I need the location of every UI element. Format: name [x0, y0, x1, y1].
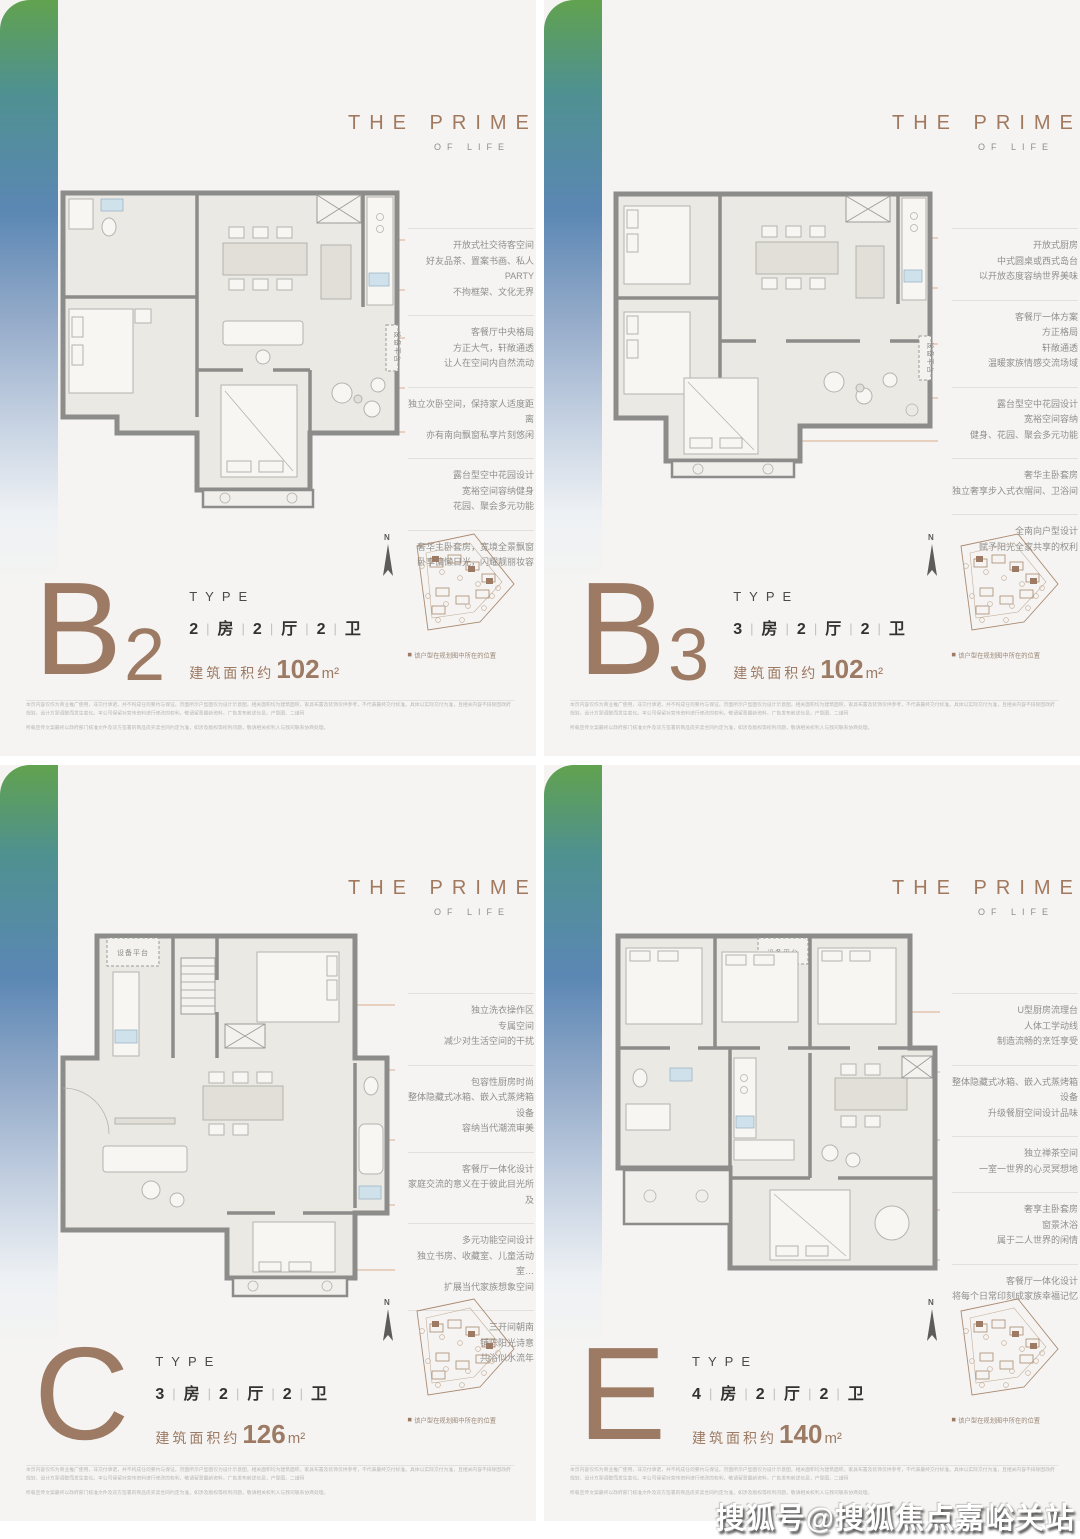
- annotation-block: 露台型空中花园设计 宽裕空间容纳 健身、花园、聚会多元功能: [952, 387, 1078, 444]
- brand-line2: OF LIFE: [348, 907, 520, 917]
- annotation-line: 客餐厅一体化设计: [408, 1162, 534, 1178]
- site-plan: N 该户型在规划图中: [916, 526, 1076, 674]
- layout-row: 2|房|2|厅|2|卫: [189, 615, 361, 639]
- separator: |: [786, 621, 789, 636]
- separator: |: [750, 621, 753, 636]
- annotation-line: 客餐厅一体方案: [952, 310, 1078, 326]
- annotation-line: 人体工学动线: [952, 1019, 1078, 1035]
- compass-icon: N: [927, 533, 937, 576]
- equipment-platform-label: 设备平台: [393, 331, 402, 363]
- annotation-line: 升级餐厨空间设计品味: [952, 1106, 1078, 1122]
- annotation-line: 方正格局: [952, 325, 1078, 341]
- layout-row: 3|房|2|厅|2|卫: [733, 615, 905, 639]
- unit-letter-main: B: [578, 575, 666, 683]
- site-boundary: [961, 1299, 1058, 1395]
- rooms-count: 3: [733, 621, 742, 638]
- annotation-line: 整体隐藏式冰箱、嵌入式蒸烤箱设备: [952, 1075, 1078, 1106]
- unit-letter-main: B: [34, 575, 122, 683]
- annotation-block: 独立禅茶空间 一室一世界的心灵冥想地: [952, 1136, 1078, 1177]
- baths-unit: 卫: [848, 1386, 864, 1403]
- caption-bullet: [952, 653, 956, 657]
- annotation-line: 客餐厅中央格局: [408, 325, 534, 341]
- annotation-line: 露台型空中花园设计: [408, 468, 534, 484]
- area-prefix: 建筑面积约: [189, 665, 274, 681]
- site-plan: N 该户型在规划图中: [372, 526, 532, 674]
- annotation-line: 一室一世界的心灵冥想地: [952, 1162, 1078, 1178]
- area-prefix: 建筑面积约: [733, 665, 818, 681]
- area-value: 140: [779, 1419, 822, 1449]
- annotation-line: 窗景沐浴: [952, 1218, 1078, 1234]
- unit-letter: B 2: [34, 575, 165, 683]
- type-details: TYPE 3|房|2|厅|2|卫 建筑面积约126m²: [155, 1340, 327, 1450]
- rooms-unit: 房: [762, 621, 778, 638]
- annotation-line: 宽裕空间容纳: [952, 412, 1078, 428]
- annotation-line: 属于二人世界的闲情: [952, 1233, 1078, 1249]
- brand-line2: OF LIFE: [348, 142, 520, 152]
- brand-logo: THE PRIME OF LIFE: [348, 877, 520, 917]
- floorplan-drawing-e: 设备平台: [610, 928, 940, 1303]
- layout-row: 3|房|2|厅|2|卫: [155, 1380, 327, 1404]
- area-unit: m²: [866, 665, 884, 682]
- compass-icon: N: [383, 533, 393, 576]
- annotation-line: 减少对生活空间的干扰: [408, 1034, 534, 1050]
- separator: |: [236, 1386, 239, 1401]
- baths-count: 2: [283, 1386, 292, 1403]
- floorplan-drawing-b2: 设备平台: [55, 185, 405, 515]
- annotation-line: 家庭交流的意义在于彼此目光所及: [408, 1177, 534, 1208]
- halls-count: 2: [756, 1386, 765, 1403]
- annotation-block: 露台型空中花园设计 宽裕空间容纳健身 花园、聚会多元功能: [408, 458, 534, 515]
- svg-text:N: N: [384, 1298, 390, 1307]
- annotation-line: U型厨房流理台: [952, 1003, 1078, 1019]
- area-unit: m²: [322, 665, 340, 682]
- type-details: TYPE 2|房|2|厅|2|卫 建筑面积约102m²: [189, 575, 361, 685]
- annotation-line: 整体隐藏式冰箱、嵌入式蒸烤箱设备: [408, 1090, 534, 1121]
- svg-text:N: N: [928, 1298, 934, 1307]
- annotation-line: 露台型空中花园设计: [952, 397, 1078, 413]
- annotation-line: 多元功能空间设计: [408, 1233, 534, 1249]
- site-plan-drawing: N: [372, 526, 532, 644]
- annotation-block: 客餐厅一体化设计 家庭交流的意义在于彼此目光所及: [408, 1152, 534, 1209]
- brand-line1: THE PRIME: [892, 112, 1064, 135]
- unit-letter: E: [578, 1340, 668, 1448]
- area-row: 建筑面积约140m²: [692, 1419, 864, 1450]
- unit-letter: C: [34, 1340, 131, 1448]
- annotation-line: 独立奢享步入式衣帽间、卫浴间: [952, 484, 1078, 500]
- baths-unit: 卫: [889, 621, 905, 638]
- site-plan-drawing: N: [916, 526, 1076, 644]
- site-plan-caption: 该户型在规划图中所在的位置: [924, 651, 1068, 660]
- halls-unit: 厅: [281, 621, 297, 638]
- annotation-line: 花园、聚会多元功能: [408, 499, 534, 515]
- type-block: E TYPE 4|房|2|厅|2|卫 建筑面积约140m²: [578, 1340, 864, 1450]
- separator: |: [334, 621, 337, 636]
- baths-count: 2: [317, 621, 326, 638]
- brand-line1: THE PRIME: [348, 112, 520, 135]
- area-value: 126: [242, 1419, 285, 1449]
- separator: |: [814, 621, 817, 636]
- baths-unit: 卫: [311, 1386, 327, 1403]
- site-plan: N 该户型在规划图中: [372, 1291, 532, 1439]
- site-plan: N 该户型在规划图中: [916, 1291, 1076, 1439]
- annotation-block: 奢享主卧套房 窗景沐浴 属于二人世界的闲情: [952, 1192, 1078, 1249]
- annotation-line: 不拘框架、文化无界: [408, 285, 534, 301]
- type-label: TYPE: [155, 1354, 327, 1369]
- area-row: 建筑面积约102m²: [733, 654, 905, 685]
- brand-logo: THE PRIME OF LIFE: [892, 877, 1064, 917]
- separator: |: [836, 1386, 839, 1401]
- site-plan-drawing: N: [916, 1291, 1076, 1409]
- separator: |: [744, 1386, 747, 1401]
- area-row: 建筑面积约102m²: [189, 654, 361, 685]
- annotation-block: 开放式厨房 中式圆桌或西式岛台 以开放态度容纳世界美味: [952, 228, 1078, 285]
- caption-text: 该户型在规划图中所在的位置: [414, 653, 496, 659]
- separator: |: [208, 1386, 211, 1401]
- annotation-line: 健身、花园、聚会多元功能: [952, 428, 1078, 444]
- site-plan-drawing: N: [372, 1291, 532, 1409]
- brand-line1: THE PRIME: [892, 877, 1064, 900]
- disclaimer-line1: 本页内容仅作为商业推广使用，非交付承诺，并不构成任何要约与保证。页面所示户型图仅…: [570, 1466, 1058, 1484]
- equipment-platform-label: 设备平台: [117, 948, 149, 957]
- rooms-count: 2: [189, 621, 198, 638]
- type-details: TYPE 3|房|2|厅|2|卫 建筑面积约102m²: [733, 575, 905, 685]
- annotation-block: 独立洗衣操作区 专属空间 减少对生活空间的干扰: [408, 993, 534, 1050]
- annotation-line: 客餐厅一体化设计: [952, 1274, 1078, 1290]
- brand-line2: OF LIFE: [892, 142, 1064, 152]
- type-label: TYPE: [692, 1354, 864, 1369]
- floorplan-drawing-b3: 设备平台: [608, 186, 938, 486]
- rooms-count: 3: [155, 1386, 164, 1403]
- unit-letter: B 3: [578, 575, 709, 683]
- separator: |: [242, 621, 245, 636]
- compass-icon: N: [383, 1298, 393, 1341]
- annotation-line: 开放式社交待客空间: [408, 238, 534, 254]
- rooms-unit: 房: [184, 1386, 200, 1403]
- separator: |: [271, 1386, 274, 1401]
- annotation-line: 亦有南向飘窗私享片刻悠闲: [408, 428, 534, 444]
- site-plan-caption: 该户型在规划图中所在的位置: [380, 651, 524, 660]
- svg-text:N: N: [928, 533, 934, 542]
- annotation-line: 轩敞通透: [952, 341, 1078, 357]
- annotation-block: 独立次卧空间，保持家人适度距离 亦有南向飘窗私享片刻悠闲: [408, 387, 534, 444]
- caption-text: 该户型在规划图中所在的位置: [958, 1418, 1040, 1424]
- brand-logo: THE PRIME OF LIFE: [348, 112, 520, 152]
- sohu-watermark: 搜狐号@搜狐焦点嘉峪关站: [716, 1495, 1075, 1537]
- brand-line2: OF LIFE: [892, 907, 1064, 917]
- site-boundary: [417, 534, 514, 630]
- annotation-block: 客餐厅中央格局 方正大气，轩敞通透 让人在空间内自然流动: [408, 315, 534, 372]
- disclaimer-line2: 所载宣传文案最终以政府部门核准文件及双方签署的商品房买卖合同约定为准，如涉及版权…: [26, 724, 338, 733]
- halls-unit: 厅: [825, 621, 841, 638]
- equipment-platform-label: 设备平台: [926, 342, 935, 374]
- annotation-line: 专属空间: [408, 1019, 534, 1035]
- unit-panel-c: THE PRIME OF LIFE 设备平台: [0, 765, 536, 1521]
- separator: |: [878, 621, 881, 636]
- type-block: C TYPE 3|房|2|厅|2|卫 建筑面积约126m²: [34, 1340, 327, 1450]
- unit-panel-e: THE PRIME OF LIFE: [544, 765, 1080, 1521]
- baths-count: 2: [861, 621, 870, 638]
- type-block: B 3 TYPE 3|房|2|厅|2|卫 建筑面积约102m²: [578, 575, 905, 685]
- annotation-line: 中式圆桌或西式岛台: [952, 254, 1078, 270]
- annotation-line: 独立禅茶空间: [952, 1146, 1078, 1162]
- halls-unit: 厅: [247, 1386, 263, 1403]
- baths-unit: 卫: [345, 621, 361, 638]
- annotation-line: 温暖家族情感交流场域: [952, 356, 1078, 372]
- separator: |: [773, 1386, 776, 1401]
- disclaimer: 本页内容仅作为商业推广使用，非交付承诺，并不构成任何要约与保证。页面所示户型图仅…: [26, 1465, 514, 1500]
- area-value: 102: [820, 654, 863, 684]
- unit-panel-b3: THE PRIME OF LIFE: [544, 0, 1080, 756]
- annotation-line: 开放式厨房: [952, 238, 1078, 254]
- annotation-block: 开放式社交待客空间 好友品茶、置案书画、私人PARTY 不拘框架、文化无界: [408, 228, 534, 300]
- separator: |: [172, 1386, 175, 1401]
- annotation-line: 方正大气，轩敞通透: [408, 341, 534, 357]
- disclaimer-line1: 本页内容仅作为商业推广使用，非交付承诺，并不构成任何要约与保证。页面所示户型图仅…: [570, 701, 1058, 719]
- area-unit: m²: [824, 1430, 842, 1447]
- site-boundary: [961, 534, 1058, 630]
- unit-letter-sub: 2: [124, 625, 165, 686]
- floorplan-drawing-c: 设备平台: [55, 928, 395, 1303]
- disclaimer: 本页内容仅作为商业推广使用，非交付承诺，并不构成任何要约与保证。页面所示户型图仅…: [570, 700, 1058, 735]
- annotation-line: 独立洗衣操作区: [408, 1003, 534, 1019]
- annotation-line: 以开放态度容纳世界美味: [952, 269, 1078, 285]
- annotation-list: U型厨房流理台 人体工学动线 制造流畅的烹饪享受 整体隐藏式冰箱、嵌入式蒸烤箱设…: [952, 993, 1078, 1320]
- annotation-block: 奢华主卧套房 独立奢享步入式衣帽间、卫浴间: [952, 458, 1078, 499]
- type-label: TYPE: [733, 589, 905, 604]
- caption-text: 该户型在规划图中所在的位置: [958, 653, 1040, 659]
- separator: |: [300, 1386, 303, 1401]
- area-unit: m²: [288, 1430, 306, 1447]
- compass-icon: N: [927, 1298, 937, 1341]
- halls-unit: 厅: [784, 1386, 800, 1403]
- disclaimer-line1: 本页内容仅作为商业推广使用，非交付承诺，并不构成任何要约与保证。页面所示户型图仅…: [26, 701, 514, 719]
- area-prefix: 建筑面积约: [155, 1430, 240, 1446]
- annotation-block: 整体隐藏式冰箱、嵌入式蒸烤箱设备 升级餐厨空间设计品味: [952, 1065, 1078, 1122]
- caption-text: 该户型在规划图中所在的位置: [414, 1418, 496, 1424]
- unit-letter-sub: 3: [668, 625, 709, 686]
- separator: |: [808, 1386, 811, 1401]
- annotation-block: 包容性厨房时尚 整体隐藏式冰箱、嵌入式蒸烤箱设备 容纳当代潮流审美: [408, 1065, 534, 1137]
- disclaimer-line2: 所载宣传文案最终以政府部门核准文件及双方签署的商品房买卖合同约定为准，如涉及版权…: [26, 1489, 338, 1498]
- annotation-block: 多元功能空间设计 独立书房、收藏室、儿童活动室… 扩展当代家族想象空间: [408, 1223, 534, 1295]
- annotation-line: 制造流畅的烹饪享受: [952, 1034, 1078, 1050]
- separator: |: [270, 621, 273, 636]
- area-prefix: 建筑面积约: [692, 1430, 777, 1446]
- floorplan-poster: THE PRIME OF LIFE: [0, 0, 1080, 1539]
- baths-count: 2: [819, 1386, 828, 1403]
- annotation-block: U型厨房流理台 人体工学动线 制造流畅的烹饪享受: [952, 993, 1078, 1050]
- annotation-block: 客餐厅一体方案 方正格局 轩敞通透 温暖家族情感交流场域: [952, 300, 1078, 372]
- separator: |: [305, 621, 308, 636]
- separator: |: [206, 621, 209, 636]
- annotation-line: 奢享主卧套房: [952, 1202, 1078, 1218]
- annotation-line: 容纳当代潮流审美: [408, 1121, 534, 1137]
- disclaimer: 本页内容仅作为商业推广使用，非交付承诺，并不构成任何要约与保证。页面所示户型图仅…: [26, 700, 514, 735]
- annotation-line: 独立次卧空间，保持家人适度距离: [408, 397, 534, 428]
- site-plan-caption: 该户型在规划图中所在的位置: [924, 1416, 1068, 1425]
- site-boundary: [417, 1299, 514, 1395]
- area-row: 建筑面积约126m²: [155, 1419, 327, 1450]
- annotation-line: 宽裕空间容纳健身: [408, 484, 534, 500]
- caption-bullet: [408, 653, 412, 657]
- halls-count: 2: [219, 1386, 228, 1403]
- unit-panel-b2: THE PRIME OF LIFE: [0, 0, 536, 756]
- brand-logo: THE PRIME OF LIFE: [892, 112, 1064, 152]
- type-label: TYPE: [189, 589, 361, 604]
- svg-text:N: N: [384, 533, 390, 542]
- layout-row: 4|房|2|厅|2|卫: [692, 1380, 864, 1404]
- area-value: 102: [276, 654, 319, 684]
- disclaimer-line1: 本页内容仅作为商业推广使用，非交付承诺，并不构成任何要约与保证。页面所示户型图仅…: [26, 1466, 514, 1484]
- halls-count: 2: [253, 621, 262, 638]
- halls-count: 2: [797, 621, 806, 638]
- annotation-line: 包容性厨房时尚: [408, 1075, 534, 1091]
- type-details: TYPE 4|房|2|厅|2|卫 建筑面积约140m²: [692, 1340, 864, 1450]
- annotation-line: 奢华主卧套房: [952, 468, 1078, 484]
- rooms-unit: 房: [218, 621, 234, 638]
- disclaimer-line2: 所载宣传文案最终以政府部门核准文件及双方签署的商品房买卖合同约定为准，如涉及版权…: [570, 724, 882, 733]
- rooms-unit: 房: [720, 1386, 736, 1403]
- type-block: B 2 TYPE 2|房|2|厅|2|卫 建筑面积约102m²: [34, 575, 361, 685]
- caption-bullet: [952, 1418, 956, 1422]
- annotation-list: 开放式厨房 中式圆桌或西式岛台 以开放态度容纳世界美味 客餐厅一体方案 方正格局…: [952, 228, 1078, 570]
- separator: |: [709, 1386, 712, 1401]
- unit-letter-main: E: [578, 1340, 666, 1448]
- annotation-line: 好友品茶、置案书画、私人PARTY: [408, 254, 534, 285]
- separator: |: [849, 621, 852, 636]
- annotation-line: 独立书房、收藏室、儿童活动室…: [408, 1249, 534, 1280]
- annotation-line: 让人在空间内自然流动: [408, 356, 534, 372]
- caption-bullet: [408, 1418, 412, 1422]
- unit-letter-main: C: [34, 1340, 129, 1448]
- site-plan-caption: 该户型在规划图中所在的位置: [380, 1416, 524, 1425]
- brand-line1: THE PRIME: [348, 877, 520, 900]
- rooms-count: 4: [692, 1386, 701, 1403]
